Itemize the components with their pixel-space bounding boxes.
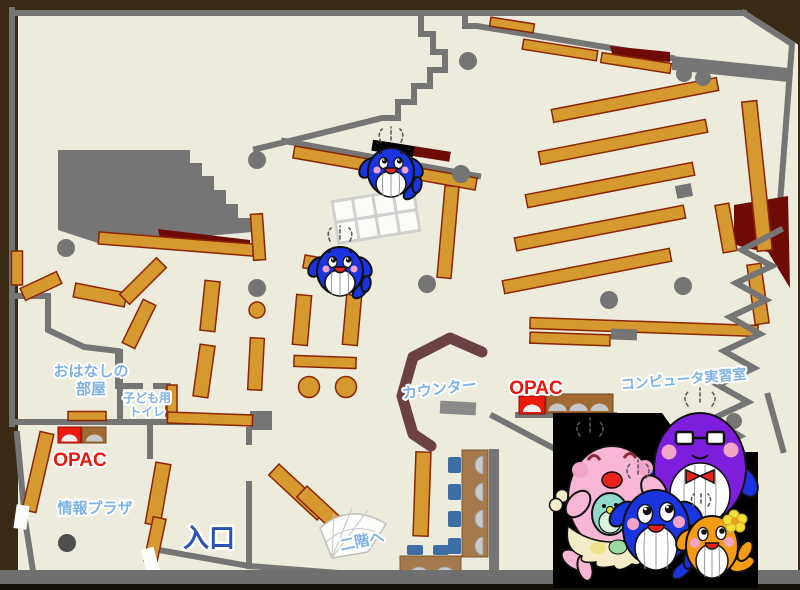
- bookshelf: [12, 251, 23, 285]
- round-table: [249, 302, 265, 318]
- pillar: [600, 291, 618, 309]
- opac-terminal-left: [58, 427, 106, 443]
- label-opac-right: OPAC: [509, 378, 563, 399]
- label-kids-toilet-line2: トイレ: [129, 405, 165, 419]
- wall-desk-back: [489, 449, 499, 575]
- label-story-room-line2: 部屋: [76, 380, 106, 398]
- pillar: [418, 275, 436, 293]
- pillar: [248, 279, 266, 297]
- bookshelf: [530, 332, 610, 346]
- label-kids-toilet-line1: 子ども用: [123, 391, 171, 405]
- pillar: [695, 70, 711, 86]
- shelf-endcap: [611, 329, 637, 341]
- chair: [407, 545, 423, 555]
- chair: [448, 457, 461, 473]
- bookshelf: [68, 412, 106, 421]
- wall-block: [250, 411, 272, 430]
- pillar: [57, 239, 75, 257]
- library-floor-map: おはなしの 部屋 子ども用 トイレ OPAC 情報プラザ 入口 二階へ カウンタ…: [0, 0, 800, 590]
- round-table: [336, 377, 357, 398]
- chair: [448, 511, 461, 527]
- pillar: [674, 277, 692, 295]
- floor-map-canvas: おはなしの 部屋 子ども用 トイレ OPAC 情報プラザ 入口 二階へ カウンタ…: [0, 0, 800, 590]
- label-opac-left: OPAC: [53, 450, 107, 471]
- pillar: [452, 165, 470, 183]
- bookshelf: [294, 355, 356, 368]
- chair: [448, 538, 461, 554]
- pillar: [459, 52, 477, 70]
- bookshelf: [167, 412, 252, 426]
- label-info-plaza: 情報プラザ: [57, 499, 132, 517]
- label-entrance: 入口: [183, 523, 235, 553]
- label-story-room-line1: おはなしの: [53, 363, 128, 380]
- bookshelf: [250, 214, 265, 261]
- counter-desk: [440, 401, 477, 416]
- pillar: [676, 66, 692, 82]
- bookshelf: [413, 452, 431, 536]
- pillar: [248, 151, 266, 169]
- chair: [448, 484, 461, 500]
- round-table: [299, 377, 320, 398]
- bookshelf: [248, 338, 265, 391]
- chair: [433, 545, 449, 555]
- pillar: [58, 534, 76, 552]
